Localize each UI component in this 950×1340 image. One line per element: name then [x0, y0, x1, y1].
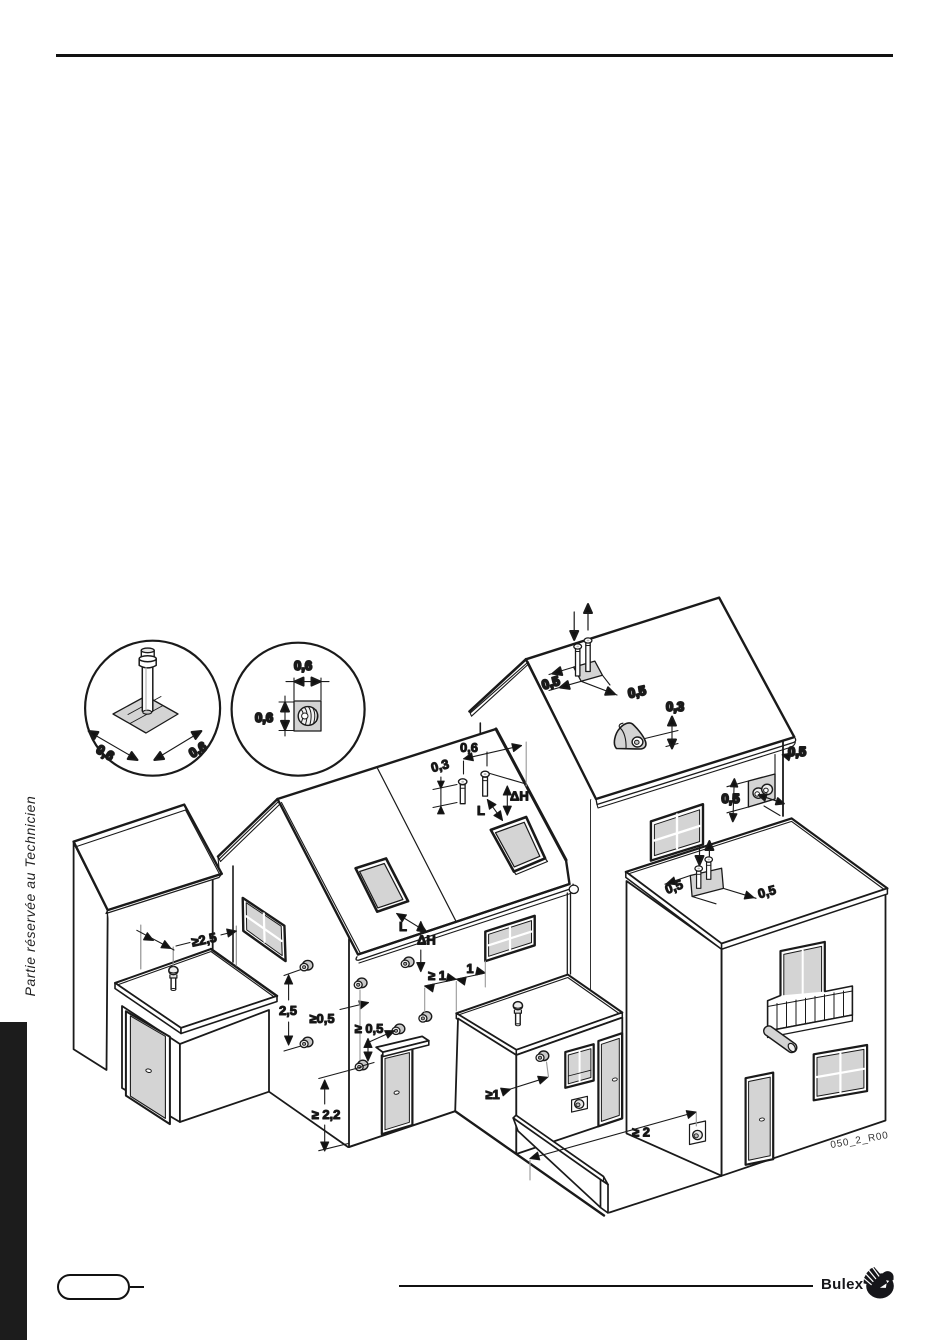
svg-text:2,5: 2,5 — [279, 1003, 297, 1018]
svg-text:0,5: 0,5 — [722, 791, 740, 806]
svg-text:≥ 2,2: ≥ 2,2 — [312, 1107, 341, 1122]
svg-text:≥0,5: ≥0,5 — [309, 1011, 334, 1026]
svg-text:≥ 1: ≥ 1 — [428, 968, 446, 983]
svg-text:0,3: 0,3 — [666, 699, 684, 714]
svg-text:≥ 2: ≥ 2 — [632, 1125, 650, 1140]
svg-text:L: L — [477, 803, 485, 818]
svg-text:ΔH: ΔH — [417, 933, 436, 948]
svg-text:1: 1 — [466, 961, 473, 976]
svg-text:≥ 0,5: ≥ 0,5 — [355, 1021, 384, 1036]
svg-text:0,6: 0,6 — [255, 710, 273, 725]
svg-text:ΔH: ΔH — [510, 789, 529, 804]
svg-text:0,6: 0,6 — [294, 658, 312, 673]
svg-text:0,6: 0,6 — [460, 740, 478, 755]
svg-text:L: L — [399, 919, 407, 934]
svg-text:≥1: ≥1 — [485, 1087, 499, 1102]
